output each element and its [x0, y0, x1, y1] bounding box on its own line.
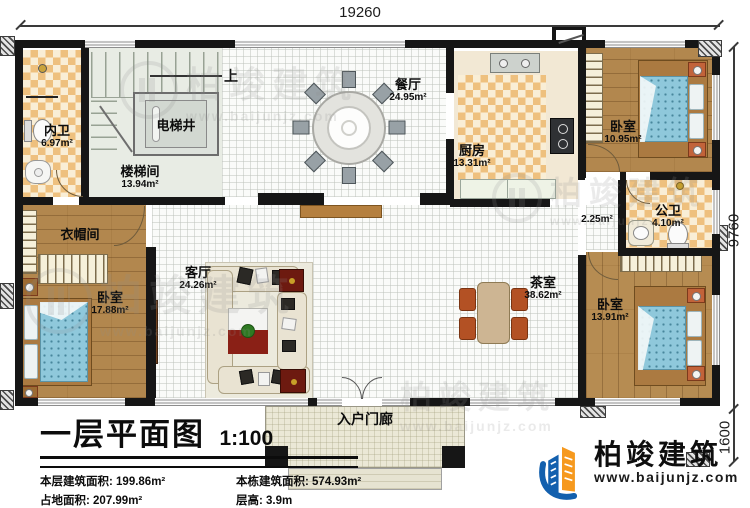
room-label-stairwell: 楼梯间13.94m² [120, 165, 159, 190]
dining-table-center [341, 120, 357, 136]
area-stats: 本层建筑面积: 199.86m² 本栋建筑面积: 574.93m² 占地面积: … [40, 473, 370, 508]
stat-total-area: 本栋建筑面积: 574.93m² [236, 473, 370, 489]
pillow [689, 84, 704, 110]
cabinet-divider [507, 180, 508, 198]
sink-icon [25, 160, 51, 184]
pillow [24, 344, 38, 379]
nightstand [688, 142, 706, 157]
title-underline [40, 456, 358, 468]
wall [650, 172, 720, 180]
window [712, 295, 720, 365]
tea-chair [459, 317, 476, 340]
room-label-public-bath: 公卫4.10m² [652, 204, 684, 229]
window [235, 40, 405, 48]
wall-left [15, 40, 23, 406]
grab-bar [26, 96, 58, 98]
wall [146, 197, 156, 205]
cushion [281, 317, 297, 331]
wall [15, 197, 53, 205]
room-label-tea: 茶室38.62m² [524, 276, 561, 301]
room-label-bedroom1: 卧室10.95m² [604, 120, 641, 145]
window [38, 398, 125, 406]
lamp-icon [692, 370, 701, 379]
stat-floor-height: 层高: 3.9m [236, 492, 370, 508]
wardrobe [585, 53, 603, 143]
vanity [628, 220, 654, 246]
tea-chair [511, 317, 528, 340]
wall [618, 248, 720, 256]
cushion [281, 298, 295, 310]
window [605, 40, 685, 48]
sink-drain [34, 168, 43, 177]
plant-icon [241, 324, 255, 338]
window [712, 75, 720, 140]
lamp-icon [693, 146, 702, 155]
dimension-top-width: 19260 [300, 4, 420, 21]
sink-bowl [499, 59, 508, 68]
ac-platform [580, 406, 606, 418]
title-block: 一层平面图 1:100 本层建筑面积: 199.86m² 本栋建筑面积: 574… [40, 409, 370, 508]
end-table [279, 269, 304, 292]
entrance-door-gap [342, 398, 382, 406]
room-label-living: 客厅24.26m² [179, 266, 216, 291]
room-label-dining: 餐厅24.95m² [389, 78, 426, 103]
medallion [291, 379, 297, 385]
ac-platform [0, 390, 14, 410]
room-label-kitchen: 厨房13.31m² [453, 144, 490, 169]
stair-direction-line [150, 75, 222, 77]
burner [558, 124, 568, 134]
dining-chair [342, 71, 356, 88]
pillow [689, 113, 704, 139]
room-label-bedroom2: 卧室17.88m² [91, 291, 128, 316]
drawing-scale: 1:100 [219, 427, 273, 450]
wall [446, 47, 454, 93]
dining-chair [389, 121, 406, 135]
window [595, 398, 680, 406]
cushion [258, 372, 270, 386]
wall [258, 193, 324, 205]
dining-chair [293, 121, 310, 135]
cushion [239, 369, 254, 385]
medallion [289, 278, 295, 284]
end-table [280, 369, 306, 393]
room-label-hallway: 2.25m² [581, 214, 613, 225]
wall [618, 180, 626, 250]
ac-platform [0, 36, 15, 56]
dimension-line-top [20, 25, 720, 27]
ac-platform [698, 40, 722, 57]
nightstand [687, 366, 705, 381]
kitchen-cabinet [460, 179, 556, 199]
pillow [687, 340, 702, 366]
dimension-right-height: 9760 [726, 201, 743, 261]
brand-logo-icon [536, 440, 588, 502]
window [85, 40, 135, 48]
room-label-inner-bath: 内卫6.97m² [41, 124, 73, 149]
window [712, 190, 720, 234]
stairs-up-label: 上 [224, 66, 238, 86]
wall [578, 172, 585, 180]
window [155, 398, 308, 406]
ac-platform [0, 283, 14, 309]
lamp-icon [25, 283, 34, 292]
dining-chair [342, 167, 356, 184]
wall [146, 247, 156, 398]
hallway-floor [586, 205, 622, 250]
pillow [687, 311, 702, 337]
sink-icon [633, 226, 649, 240]
stat-floor-area: 本层建筑面积: 199.86m² [40, 473, 236, 489]
lamp-icon [692, 292, 701, 301]
lamp-icon [25, 389, 33, 397]
cushion [255, 267, 269, 284]
burner [558, 139, 568, 149]
stove-icon [550, 118, 574, 154]
sink-bowl [521, 59, 530, 68]
brand-website: www.baijunjz.com [594, 469, 739, 485]
page-title: 一层平面图 [40, 417, 205, 452]
room-label-cloakroom: 衣帽间 [60, 228, 99, 242]
wall [578, 255, 586, 398]
nightstand [688, 62, 706, 77]
window [470, 398, 555, 406]
kitchen-sink [490, 53, 540, 73]
wall [450, 199, 550, 207]
tea-table [477, 282, 510, 344]
shower-head-icon [38, 64, 47, 73]
brand-name: 柏竣建筑 [594, 440, 739, 469]
nightstand [687, 288, 705, 303]
room-label-bedroom3: 卧室13.91m² [591, 298, 628, 323]
toilet-tank [24, 120, 32, 142]
roof-notch [552, 26, 586, 44]
notch-line [558, 34, 583, 43]
porch-column [442, 446, 465, 468]
lamp-icon [693, 66, 702, 75]
wall [620, 172, 626, 180]
tea-chair [459, 288, 476, 311]
wardrobe [38, 254, 108, 284]
floor-drain-icon [676, 182, 684, 190]
wall [578, 43, 586, 178]
cushion [282, 340, 296, 352]
sideboard [300, 205, 382, 218]
window [317, 398, 342, 406]
pillow [24, 305, 38, 340]
brand-logo: 柏竣建筑 www.baijunjz.com [536, 440, 739, 502]
window [382, 398, 410, 406]
stat-footprint-area: 占地面积: 207.99m² [40, 492, 236, 508]
floor-plan-canvas: 上 [0, 0, 750, 508]
room-label-elevator: 电梯井 [156, 119, 195, 133]
